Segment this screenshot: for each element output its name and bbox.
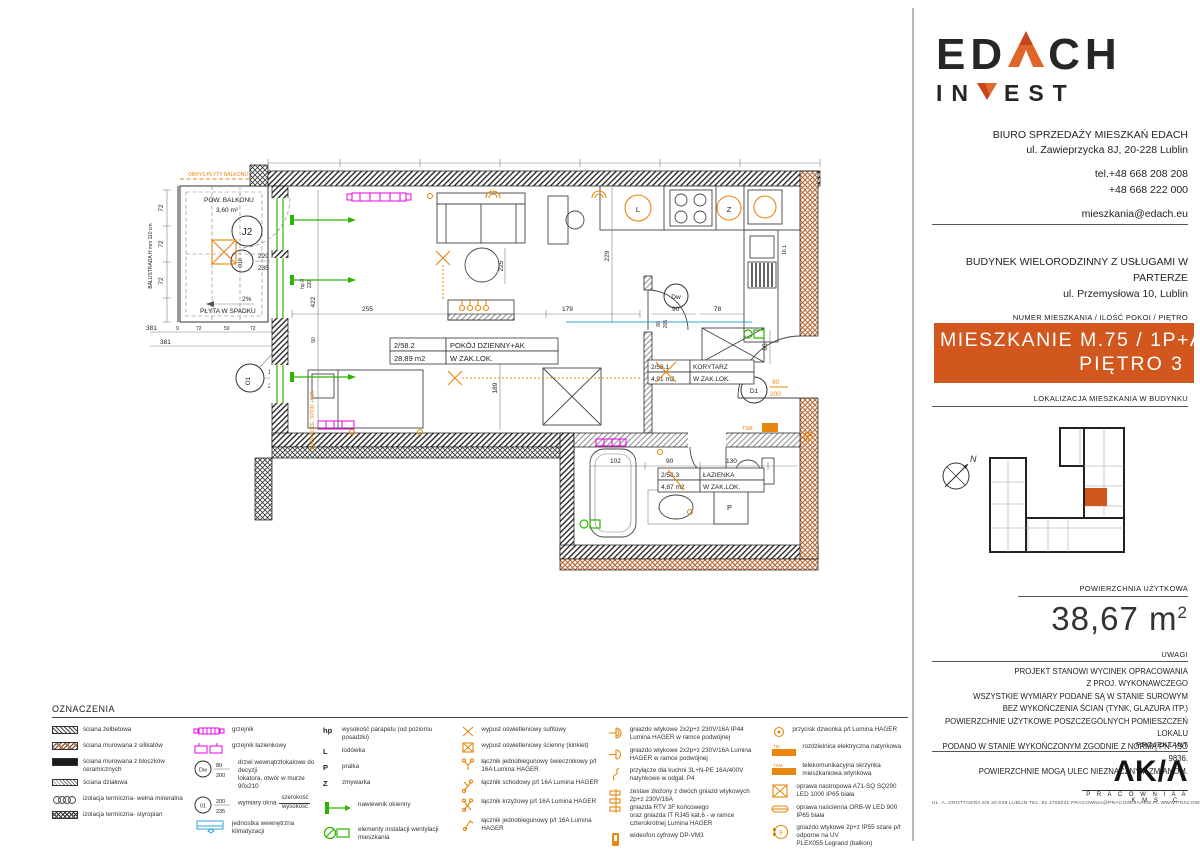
videophone-icon — [607, 832, 625, 847]
svg-text:235: 235 — [216, 809, 225, 815]
svg-text:235: 235 — [258, 265, 269, 272]
ceramic-wall-swatch — [52, 758, 78, 766]
divider — [52, 717, 908, 718]
svg-text:hp 0: hp 0 — [300, 279, 306, 289]
legend-title: OZNACZENIA — [52, 704, 908, 714]
svg-text:200: 200 — [216, 773, 225, 779]
chandelier-switch-icon — [460, 758, 476, 772]
vent-element-icon — [744, 330, 764, 338]
apartment-caption: NUMER MIESZKANIA / ILOŚĆ POKOI / PIĘTRO — [932, 313, 1188, 322]
ventilation-icon — [323, 826, 353, 840]
stair-switch-icon — [460, 779, 476, 793]
balcony: OBRYS PŁYTY BALKONU POW. BALKONU 3,60 m²… — [146, 172, 290, 392]
svg-text:3,60 m²: 3,60 m² — [216, 207, 239, 214]
interior-door-symbol: Dw80200 — [193, 759, 233, 779]
balcony-door — [240, 198, 290, 250]
top-dimension-line — [268, 159, 820, 167]
entrance-door-tag: D1 — [750, 388, 759, 395]
sofa — [437, 193, 525, 243]
svg-text:2%: 2% — [242, 296, 252, 303]
shaft-grille — [748, 262, 776, 288]
hp-symbol: hp — [323, 726, 337, 735]
svg-text:POW. BALKONU: POW. BALKONU — [204, 197, 254, 204]
washbasin — [659, 495, 693, 519]
round-table — [465, 248, 499, 282]
washer-symbol: P — [323, 763, 337, 772]
window-vent-icon — [290, 372, 356, 382]
logo-text-est: EST — [1004, 82, 1076, 105]
svg-text:102: 102 — [610, 458, 621, 465]
cooktop — [670, 190, 712, 226]
svg-text:ŁAZIENKA: ŁAZIENKA — [703, 472, 735, 479]
akm-logo: ΛK/Λ — [1114, 757, 1188, 787]
svg-text:80: 80 — [656, 321, 662, 327]
radiator-icon — [347, 193, 411, 201]
usable-area-value: 38,67 m2 — [932, 600, 1188, 638]
svg-text:200: 200 — [770, 391, 781, 398]
sales-office-contact: BIURO SPRZEDAŻY MIESZKAŃ EDACH ul. Zawie… — [932, 128, 1188, 222]
location-caption: LOKALIZACJA MIESZKANIA W BUDYNKU — [932, 394, 1188, 403]
living-room: 225 — [290, 190, 642, 449]
window-dim-symbol: 01200235 — [193, 795, 233, 815]
wall-light-icon — [460, 742, 476, 753]
svg-text:B: B — [780, 831, 784, 837]
svg-text:W ZAK.LOK.: W ZAK.LOK. — [703, 484, 740, 491]
logo-text-ch: CH — [1048, 33, 1122, 77]
office-phone-1: tel.+48 668 208 208 — [932, 167, 1188, 182]
svg-text:KORYTARZ: KORYTARZ — [693, 364, 728, 371]
svg-text:PŁYTA W SPADKU: PŁYTA W SPADKU — [200, 308, 256, 315]
building-name: BUDYNEK WIELORODZINNY Z USŁUGAMI W PARTE… — [932, 255, 1188, 287]
apartment-offer-card: OBRYS PŁYTY BALKONU POW. BALKONU 3,60 m²… — [0, 0, 1200, 849]
multimedia-set-icon — [607, 788, 625, 814]
divider — [932, 661, 1188, 662]
telecom-box-icon: TSM — [771, 762, 797, 776]
sidebar: ED CH IN EST — [932, 0, 1194, 849]
building-address: ul. Przemysłowa 10, Lublin — [932, 287, 1188, 303]
floor-plan-drawing: OBRYS PŁYTY BALKONU POW. BALKONU 3,60 m²… — [0, 0, 910, 700]
svg-text:50: 50 — [311, 337, 317, 343]
compass-icon: N — [943, 454, 977, 489]
building-location-map: N — [932, 412, 1194, 582]
svg-text:O10: O10 — [238, 258, 244, 268]
wall-lamp-icon — [486, 191, 500, 198]
silicate-wall-swatch — [52, 742, 78, 750]
window-vent-icon — [323, 801, 353, 815]
ceiling-light-icon — [436, 251, 450, 300]
svg-text:179: 179 — [562, 306, 573, 313]
fridge-letter: L — [636, 205, 640, 214]
svg-text:O1: O1 — [245, 376, 252, 385]
vent-element-icon — [580, 520, 600, 528]
svg-text:72: 72 — [158, 240, 165, 248]
radiator-icon — [193, 726, 227, 736]
svg-text:W ZAK.LOK.: W ZAK.LOK. — [693, 376, 730, 383]
bathroom-radiator-icon — [193, 742, 227, 754]
divider — [932, 406, 1188, 407]
highlighted-unit — [1085, 488, 1107, 506]
divider — [1018, 596, 1188, 597]
svg-text:POKÓJ DZIENNY+AK: POKÓJ DZIENNY+AK — [450, 341, 525, 350]
office-email: mieszkania@edach.eu — [932, 207, 1188, 222]
designer-caption: PROJEKTANT — [932, 740, 1188, 749]
svg-text:BALUSTRADA H mm 110 cm: BALUSTRADA H mm 110 cm — [148, 223, 154, 288]
doorbell-button-icon — [771, 726, 787, 738]
wall-luminaire-icon — [771, 804, 791, 814]
apartment-floor: PIĘTRO 3 — [940, 352, 1184, 376]
svg-text:381: 381 — [160, 339, 171, 346]
svg-text:2/58.1: 2/58.1 — [651, 364, 669, 371]
wardrobe — [543, 368, 601, 425]
svg-text:72: 72 — [196, 326, 202, 332]
svg-text:220: 220 — [307, 280, 313, 289]
svg-text:50: 50 — [224, 326, 230, 332]
svg-text:NADPROŻE, SPÓD +8,35: NADPROŻE, SPÓD +8,35 — [309, 390, 316, 449]
styrofoam-swatch — [52, 811, 78, 819]
vertical-divider — [912, 8, 914, 841]
ceiling-light-icon — [448, 371, 642, 385]
svg-text:OBRYS PŁYTY BALKONU: OBRYS PŁYTY BALKONU — [188, 172, 248, 178]
svg-text:TSM: TSM — [742, 426, 753, 432]
logo-a-triangle-icon — [1007, 30, 1045, 76]
svg-text:28,89 m2: 28,89 m2 — [394, 354, 425, 363]
roof-drain-symbol — [212, 240, 236, 264]
apartment-number: MIESZKANIE M.75 / 1P+AK — [940, 328, 1184, 352]
fridge-symbol: L — [323, 747, 337, 756]
balcony-socket-icon: B — [771, 824, 791, 840]
office-name: BIURO SPRZEDAŻY MIESZKAŃ EDACH — [932, 128, 1188, 143]
building-info: BUDYNEK WIELORODZINNY Z USŁUGAMI W PARTE… — [932, 255, 1188, 302]
double-socket-icon — [607, 747, 625, 760]
wardrobe-2 — [702, 328, 764, 362]
office-address: ul. Zawieprzycka 8J, 20-228 Lublin — [932, 143, 1188, 158]
divider — [932, 751, 1188, 752]
svg-text:220: 220 — [258, 253, 269, 260]
svg-text:225: 225 — [498, 260, 505, 271]
room-label-bathroom: 2/58.3 ŁAZIENKA 4,87 m2 W ZAK.LOK. — [658, 468, 764, 492]
dishwasher-symbol: Z — [323, 779, 337, 788]
svg-text:01: 01 — [200, 804, 206, 810]
svg-text:90: 90 — [672, 306, 680, 313]
svg-text:80: 80 — [216, 763, 222, 769]
window-2 — [270, 365, 290, 403]
window-1 — [270, 258, 290, 318]
svg-text:78: 78 — [714, 306, 722, 313]
svg-text:255: 255 — [362, 306, 373, 313]
logo-v-triangle-icon — [977, 81, 997, 104]
svg-text:130: 130 — [726, 458, 737, 465]
logo-text-in: IN — [936, 82, 977, 105]
svg-text:9: 9 — [176, 326, 179, 332]
svg-text:90: 90 — [772, 379, 780, 386]
svg-text:N: N — [970, 454, 977, 464]
svg-text:Dw: Dw — [199, 768, 207, 774]
svg-text:72: 72 — [250, 326, 256, 332]
single-switch-icon — [460, 817, 476, 831]
area-caption: POWIERZCHNIA UŻYTKOWA — [932, 584, 1188, 593]
room-label-corridor: 2/58.1 KORYTARZ 4,91 m2 W ZAK.LOK. — [648, 360, 754, 384]
designer-footer: UL. A. GROTTGERA 5/9 20-029 LUBLIN TEL. … — [932, 801, 1188, 806]
divider — [1082, 790, 1188, 791]
svg-text:TM: TM — [773, 744, 780, 749]
desk-and-chair — [548, 196, 584, 244]
mineral-wool-swatch — [52, 795, 78, 805]
svg-text:189: 189 — [492, 382, 499, 393]
room-label-living: 2/58.2 POKÓJ DZIENNY+AK 28,89 m2 W ZAK.L… — [390, 338, 558, 364]
partition-wall-swatch — [52, 779, 78, 786]
svg-text:381: 381 — [146, 325, 157, 332]
ceiling-luminaire-icon — [771, 783, 791, 799]
svg-text:422: 422 — [310, 296, 317, 307]
notes-caption: UWAGI — [932, 650, 1188, 659]
svg-text:W ZAK.LOK.: W ZAK.LOK. — [450, 354, 493, 363]
wall-lamp-icon — [592, 191, 606, 198]
svg-text:200: 200 — [216, 799, 225, 805]
svg-text:90: 90 — [666, 458, 674, 465]
kitchen-sink — [748, 190, 782, 224]
tv-cabinet — [448, 300, 514, 320]
reinforced-wall-swatch — [52, 726, 78, 734]
bed — [308, 370, 423, 428]
svg-text:72: 72 — [158, 204, 165, 212]
ac-indoor-unit-icon — [193, 820, 227, 834]
door-dw-tag: Dw — [671, 294, 681, 301]
svg-text:4,87 m2: 4,87 m2 — [661, 484, 685, 491]
cross-switch-icon — [460, 798, 476, 812]
svg-text:16.1: 16.1 — [782, 245, 788, 255]
kitchen-annex: L Z 16.1 — [566, 186, 800, 342]
washer-letter: P — [727, 503, 732, 512]
window-vent-icon — [290, 215, 356, 225]
logo-text-ed: ED — [936, 33, 1007, 77]
ceiling-light-icon — [460, 726, 476, 737]
svg-text:72: 72 — [158, 277, 165, 285]
svg-text:TSM: TSM — [773, 763, 783, 768]
double-socket-ip44-icon — [607, 726, 625, 739]
edach-invest-logo: ED CH IN EST — [936, 30, 1122, 105]
balcony-tag: J2 — [242, 227, 253, 238]
office-phone-2: +48 668 222 000 — [932, 183, 1188, 198]
kitchen-connection-icon — [607, 767, 625, 781]
legend-oznaczenia: OZNACZENIA ściana żelbetowa ściana murow… — [52, 704, 908, 848]
apartment-banner: MIESZKANIE M.75 / 1P+AK PIĘTRO 3 — [934, 323, 1194, 383]
dishwasher-letter: Z — [727, 205, 732, 214]
svg-text:205: 205 — [663, 320, 669, 329]
svg-text:229: 229 — [604, 250, 611, 261]
svg-text:2/58.2: 2/58.2 — [394, 341, 415, 350]
divider — [932, 224, 1188, 225]
distribution-board-icon: TM — [771, 743, 797, 757]
